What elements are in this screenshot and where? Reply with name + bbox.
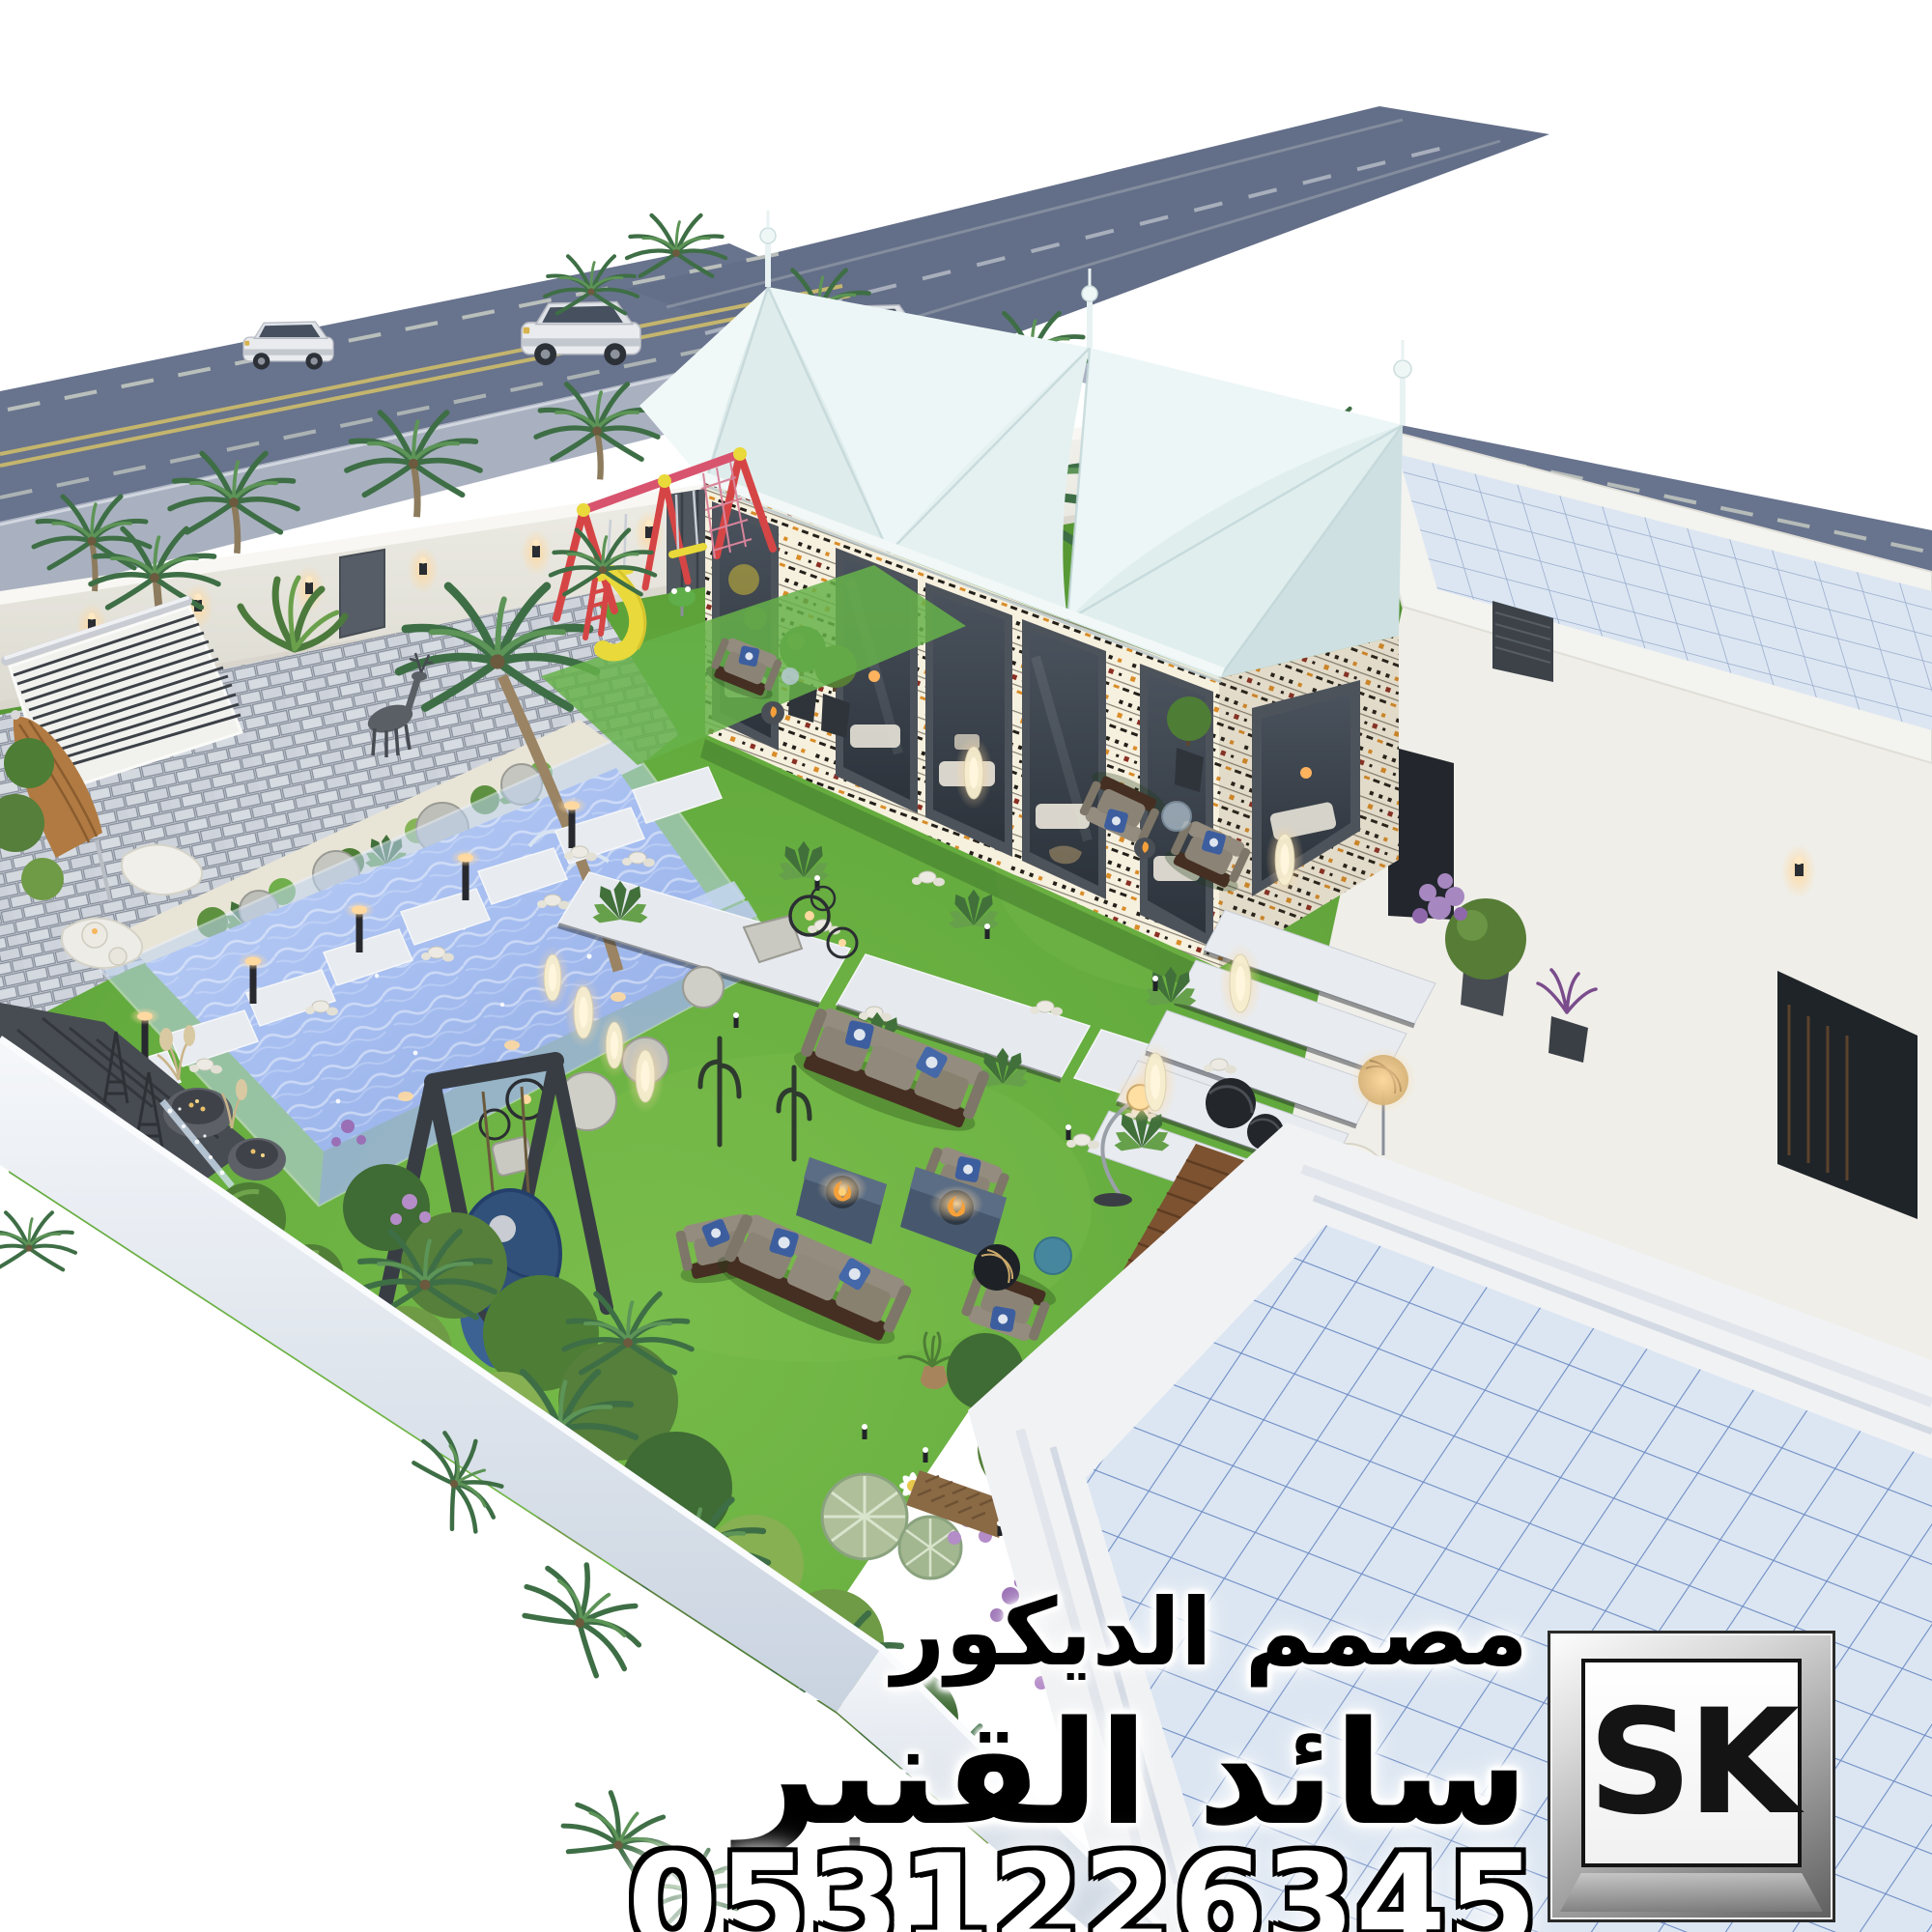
sk-logo: SK	[1548, 1631, 1835, 1922]
render-canvas: مصمم الديكور سائد القنبر 0531226345 SK	[0, 0, 1932, 1932]
tent-window	[1022, 619, 1106, 899]
sk-logo-text: SK	[1588, 1679, 1795, 1847]
sk-logo-bevel	[1560, 1873, 1823, 1912]
watermark-name: سائد القنبر	[737, 1702, 1528, 1845]
wall-door	[340, 550, 384, 638]
watermark-phone: 0531226345	[628, 1837, 1538, 1932]
watermark-title: مصمم الديكور	[892, 1586, 1528, 1679]
sk-logo-face: SK	[1581, 1659, 1802, 1867]
